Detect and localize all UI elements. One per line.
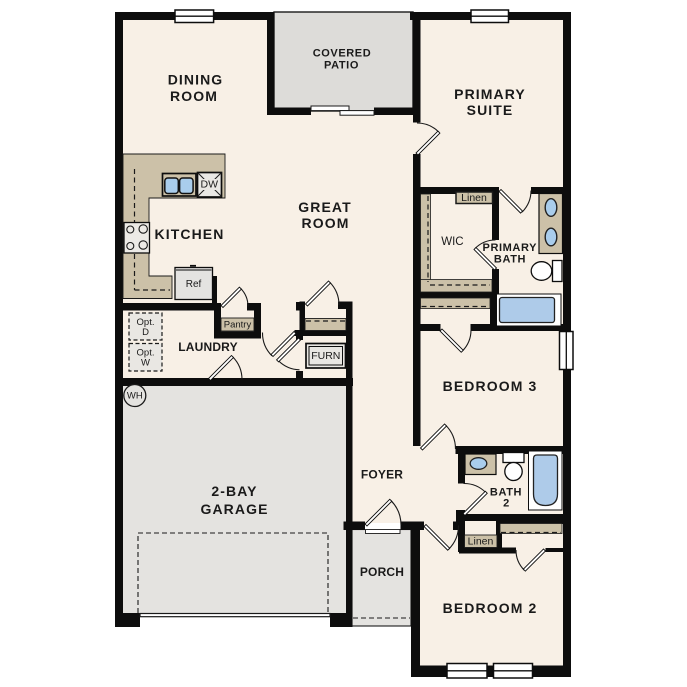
svg-text:Linen: Linen <box>461 192 487 204</box>
svg-text:BATH: BATH <box>494 254 526 266</box>
svg-text:Pantry: Pantry <box>224 320 252 331</box>
svg-text:COVERED: COVERED <box>313 48 372 60</box>
svg-text:2-BAY: 2-BAY <box>211 483 257 499</box>
svg-text:ROOM: ROOM <box>170 88 218 104</box>
svg-text:PATIO: PATIO <box>324 60 359 72</box>
svg-text:GARAGE: GARAGE <box>200 501 268 517</box>
svg-text:FOYER: FOYER <box>361 468 403 482</box>
svg-text:BEDROOM 2: BEDROOM 2 <box>443 600 538 616</box>
svg-text:BEDROOM 3: BEDROOM 3 <box>443 378 538 394</box>
svg-text:FURN: FURN <box>311 350 340 362</box>
svg-text:W: W <box>141 358 150 369</box>
svg-text:DW: DW <box>201 179 219 191</box>
svg-text:GREAT: GREAT <box>298 199 351 215</box>
svg-text:ROOM: ROOM <box>302 215 350 231</box>
svg-text:KITCHEN: KITCHEN <box>155 226 225 242</box>
svg-text:Linen: Linen <box>468 536 494 548</box>
svg-text:WH: WH <box>127 390 143 401</box>
svg-text:PRIMARY: PRIMARY <box>483 242 538 254</box>
svg-text:SUITE: SUITE <box>467 102 514 118</box>
svg-text:PRIMARY: PRIMARY <box>454 86 526 102</box>
svg-text:DINING: DINING <box>168 72 224 88</box>
svg-text:2: 2 <box>503 498 510 510</box>
svg-text:D: D <box>142 327 149 338</box>
svg-text:PORCH: PORCH <box>360 565 404 579</box>
svg-text:Ref: Ref <box>186 279 202 290</box>
svg-text:LAUNDRY: LAUNDRY <box>178 340 238 354</box>
svg-text:WIC: WIC <box>441 236 463 248</box>
